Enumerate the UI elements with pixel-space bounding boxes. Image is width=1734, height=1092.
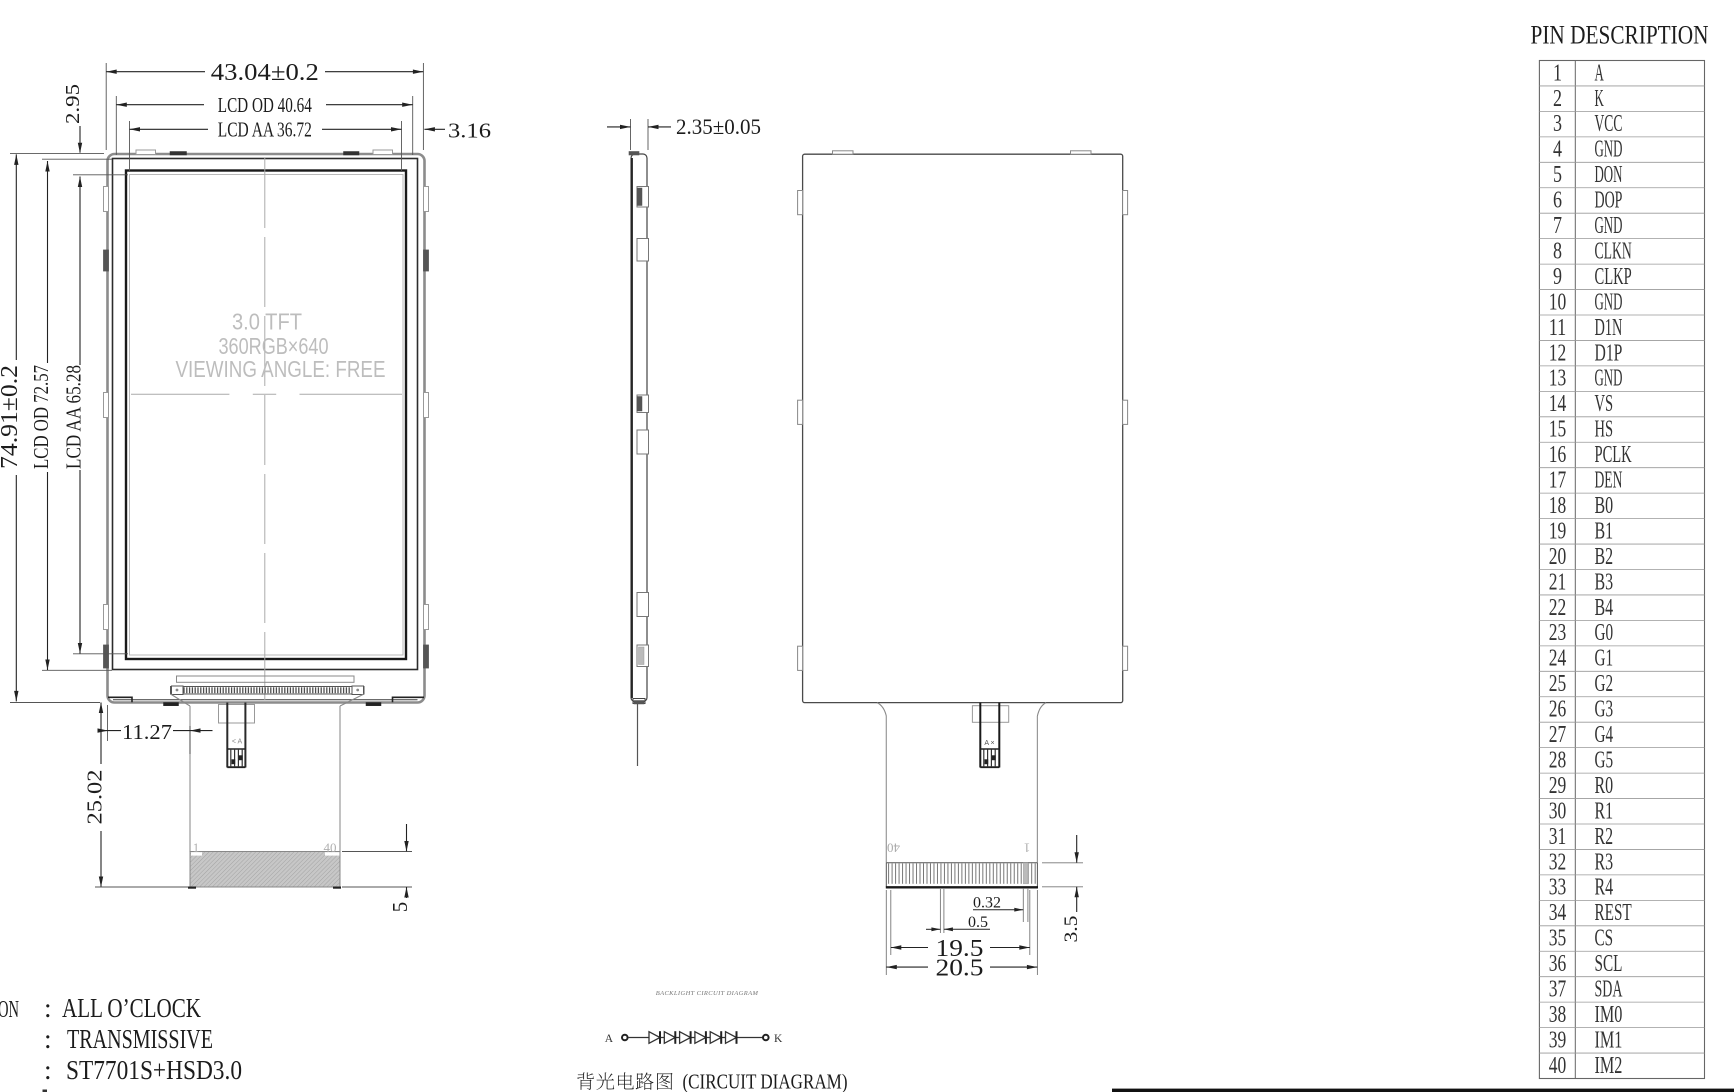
- svg-text:13: 13: [1549, 366, 1567, 392]
- svg-text:G0: G0: [1595, 620, 1614, 646]
- svg-text:23: 23: [1549, 620, 1567, 646]
- svg-text:PIN DESCRIPTION: PIN DESCRIPTION: [1531, 21, 1709, 50]
- svg-text:4: 4: [1553, 137, 1562, 163]
- svg-text:ALL O’CLOCK: ALL O’CLOCK: [62, 992, 201, 1023]
- svg-text:G1: G1: [1595, 646, 1614, 672]
- svg-text:DOP: DOP: [1595, 188, 1623, 214]
- svg-text:32: 32: [1549, 849, 1567, 875]
- svg-text:25: 25: [1549, 671, 1567, 697]
- svg-text:16: 16: [1549, 442, 1567, 468]
- svg-text:TRANSMISSIVE: TRANSMISSIVE: [67, 1023, 213, 1054]
- svg-text:CLKP: CLKP: [1595, 264, 1632, 290]
- svg-text:2: 2: [1553, 86, 1562, 112]
- svg-text:IM1: IM1: [1595, 1027, 1623, 1053]
- svg-text:B3: B3: [1595, 569, 1614, 595]
- svg-text:GND: GND: [1595, 289, 1623, 315]
- svg-text:8: 8: [1553, 238, 1562, 264]
- svg-text:1: 1: [193, 840, 200, 855]
- svg-text:34: 34: [1549, 900, 1567, 926]
- svg-text:27: 27: [1549, 722, 1567, 748]
- svg-text:3.0 TFT: 3.0 TFT: [232, 309, 302, 335]
- svg-text:G2: G2: [1595, 671, 1614, 697]
- svg-text:VS: VS: [1595, 391, 1614, 417]
- svg-text:B2: B2: [1595, 544, 1614, 570]
- svg-text:CS: CS: [1595, 926, 1614, 952]
- svg-text:40: 40: [887, 841, 900, 856]
- svg-text:19: 19: [1549, 518, 1567, 544]
- svg-text:DON: DON: [1595, 162, 1623, 188]
- svg-text:30: 30: [1549, 798, 1567, 824]
- svg-text:39: 39: [1549, 1027, 1567, 1053]
- svg-text:VIEWING ANGLE: FREE: VIEWING ANGLE: FREE: [176, 356, 386, 382]
- svg-text:VCC: VCC: [1595, 111, 1623, 137]
- svg-text:20: 20: [1549, 544, 1567, 570]
- svg-text:3.16: 3.16: [448, 118, 491, 142]
- svg-text:R4: R4: [1595, 875, 1614, 901]
- svg-text:10: 10: [1549, 289, 1567, 315]
- svg-text:0.32: 0.32: [973, 894, 1001, 911]
- svg-text:17: 17: [1549, 468, 1567, 494]
- svg-text:HS: HS: [1595, 417, 1614, 443]
- svg-text:9: 9: [1553, 264, 1562, 290]
- svg-text:14: 14: [1549, 391, 1567, 417]
- svg-text:CLKN: CLKN: [1595, 238, 1632, 264]
- svg-text:12: 12: [1549, 340, 1567, 366]
- svg-text::: :: [44, 1054, 52, 1085]
- svg-text:SCL: SCL: [1595, 951, 1623, 977]
- svg-text:11.27: 11.27: [122, 720, 172, 744]
- svg-text:2.95: 2.95: [62, 84, 84, 124]
- svg-text:< A: < A: [232, 739, 243, 746]
- svg-text:74.91±0.2: 74.91±0.2: [0, 365, 23, 469]
- svg-text:2.35±0.05: 2.35±0.05: [676, 114, 761, 139]
- svg-text:15: 15: [1549, 417, 1567, 443]
- svg-text:11: 11: [1549, 315, 1567, 341]
- svg-text:1: 1: [1024, 841, 1031, 856]
- svg-text:37: 37: [1549, 977, 1567, 1003]
- svg-text:LCD OD 72.57: LCD OD 72.57: [29, 365, 53, 469]
- svg-text:6: 6: [1553, 188, 1562, 214]
- svg-text:33: 33: [1549, 875, 1567, 901]
- svg-text:IM0: IM0: [1595, 1002, 1623, 1028]
- svg-text:18: 18: [1549, 493, 1567, 519]
- svg-text:7: 7: [1553, 213, 1562, 239]
- svg-text:20.5: 20.5: [936, 955, 984, 982]
- svg-text:ST7701S+HSD3.0: ST7701S+HSD3.0: [66, 1054, 242, 1085]
- svg-text:21: 21: [1549, 569, 1567, 595]
- svg-text:PCLK: PCLK: [1595, 442, 1633, 468]
- svg-text:G4: G4: [1595, 722, 1614, 748]
- svg-text:G5: G5: [1595, 747, 1614, 773]
- svg-text:LCD AA 65.28: LCD AA 65.28: [62, 365, 86, 469]
- svg-text:R2: R2: [1595, 824, 1614, 850]
- svg-text:K: K: [1595, 86, 1605, 112]
- svg-text::: :: [44, 992, 52, 1023]
- svg-text:G3: G3: [1595, 697, 1614, 723]
- svg-text:22: 22: [1549, 595, 1567, 621]
- svg-text:IM2: IM2: [1595, 1053, 1623, 1079]
- svg-text:24: 24: [1549, 646, 1567, 672]
- svg-text:(CIRCUIT DIAGRAM): (CIRCUIT DIAGRAM): [683, 1070, 848, 1092]
- svg-text:0.5: 0.5: [968, 914, 988, 931]
- svg-text:GND: GND: [1595, 366, 1623, 392]
- svg-text::: :: [44, 1023, 52, 1054]
- svg-text:SDA: SDA: [1595, 977, 1623, 1003]
- svg-text:36: 36: [1549, 951, 1567, 977]
- svg-text:3: 3: [1553, 111, 1562, 137]
- svg-text:GND: GND: [1595, 213, 1623, 239]
- svg-text:5: 5: [1553, 162, 1562, 188]
- svg-text:A: A: [605, 1033, 614, 1045]
- svg-text:REST: REST: [1595, 900, 1632, 926]
- svg-text:D1N: D1N: [1595, 315, 1623, 341]
- svg-text:3.5: 3.5: [1061, 916, 1082, 943]
- svg-text:DEN: DEN: [1595, 468, 1623, 494]
- svg-text:25.02: 25.02: [83, 770, 107, 825]
- svg-text:43.04±0.2: 43.04±0.2: [211, 60, 319, 86]
- svg-text:GND: GND: [1595, 137, 1623, 163]
- svg-text:R3: R3: [1595, 849, 1614, 875]
- svg-text:B0: B0: [1595, 493, 1614, 519]
- svg-text:35: 35: [1549, 926, 1567, 952]
- svg-text:LCD OD 40.64: LCD OD 40.64: [218, 93, 312, 117]
- svg-text:31: 31: [1549, 824, 1567, 850]
- svg-text:D1P: D1P: [1595, 340, 1623, 366]
- svg-text:R0: R0: [1595, 773, 1614, 799]
- svg-text:38: 38: [1549, 1002, 1567, 1028]
- svg-text:40: 40: [1549, 1053, 1567, 1079]
- svg-text:29: 29: [1549, 773, 1567, 799]
- svg-text:A: A: [1595, 60, 1605, 86]
- svg-text:R1: R1: [1595, 798, 1614, 824]
- svg-text:ON: ON: [0, 997, 19, 1023]
- svg-text:28: 28: [1549, 747, 1567, 773]
- svg-text:BACKLIGHT CIRCUIT DIAGRAM: BACKLIGHT CIRCUIT DIAGRAM: [656, 990, 759, 997]
- svg-text:K: K: [774, 1033, 783, 1045]
- svg-text:26: 26: [1549, 697, 1567, 723]
- svg-text:B4: B4: [1595, 595, 1614, 621]
- svg-text:B1: B1: [1595, 518, 1614, 544]
- svg-text:1: 1: [1553, 60, 1562, 86]
- svg-text:5: 5: [388, 902, 412, 913]
- svg-text:LCD AA 36.72: LCD AA 36.72: [218, 117, 312, 141]
- svg-text:A ×: A ×: [984, 740, 994, 747]
- svg-text:40: 40: [324, 840, 337, 855]
